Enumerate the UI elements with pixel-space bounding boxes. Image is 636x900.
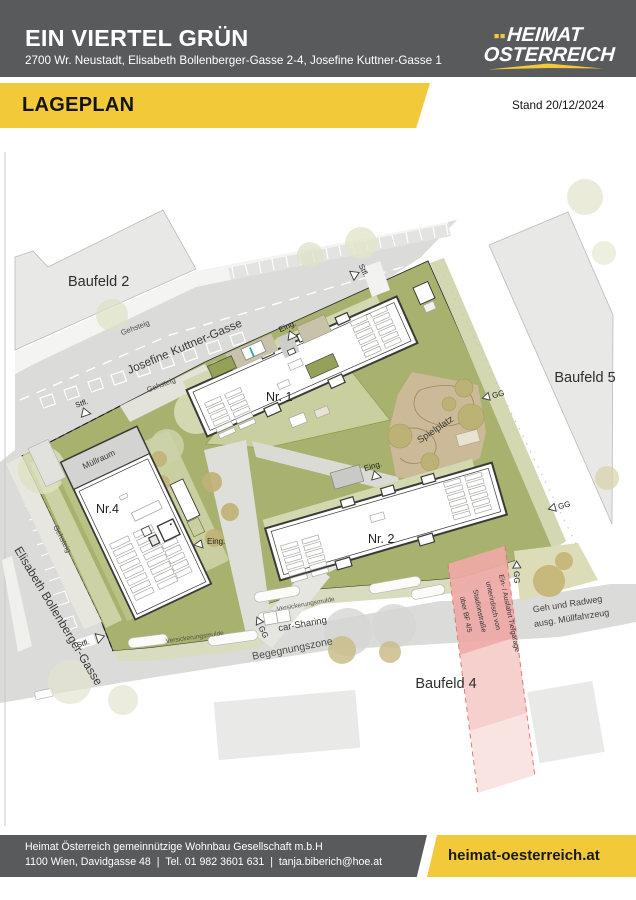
svg-text:Baufeld 5: Baufeld 5 bbox=[554, 370, 615, 386]
svg-text:Eing.: Eing. bbox=[207, 537, 225, 546]
svg-text:GG: GG bbox=[512, 571, 521, 584]
svg-text:Baufeld 2: Baufeld 2 bbox=[68, 274, 129, 290]
svg-text:HEIMAT: HEIMAT bbox=[506, 24, 584, 46]
svg-text:GG: GG bbox=[557, 499, 571, 511]
svg-text:OSTERREICH: OSTERREICH bbox=[483, 44, 616, 66]
svg-text:Nr. 1: Nr. 1 bbox=[266, 390, 292, 404]
svg-text:Nr. 2: Nr. 2 bbox=[368, 532, 394, 546]
svg-text:Baufeld 4: Baufeld 4 bbox=[415, 676, 476, 692]
svg-text:Nr.4: Nr.4 bbox=[96, 502, 119, 516]
